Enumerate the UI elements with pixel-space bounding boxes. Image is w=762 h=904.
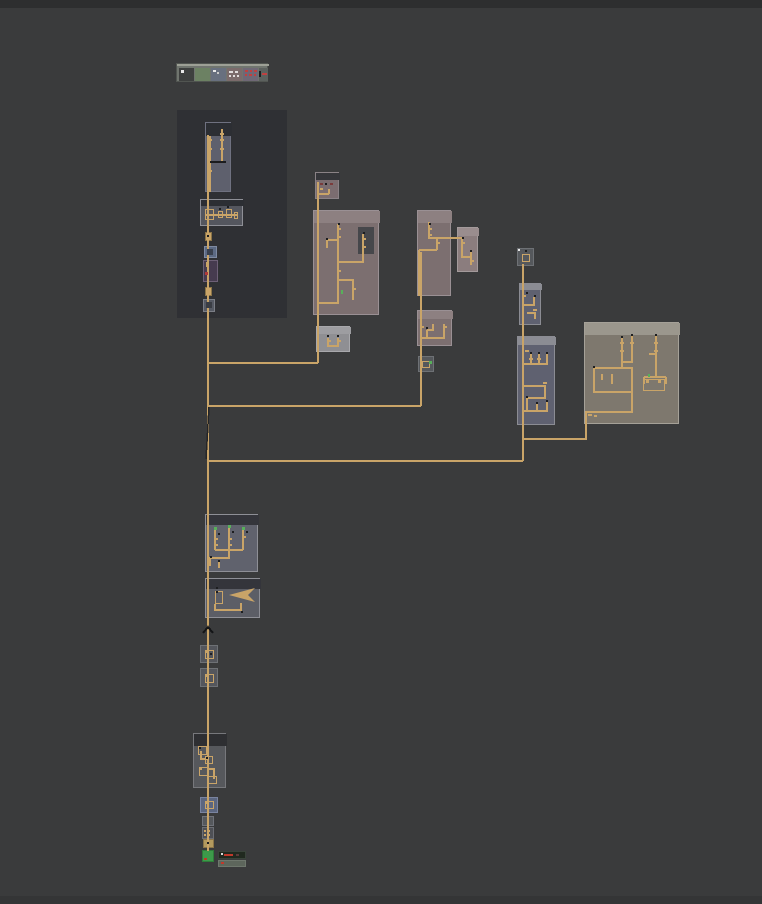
node-dot xyxy=(621,336,623,338)
node-dot xyxy=(204,858,207,860)
tile-dark-mark xyxy=(181,70,184,73)
node-dot xyxy=(206,802,208,804)
group-f-upper-header[interactable] xyxy=(206,515,259,525)
node-dot xyxy=(207,249,213,255)
node-dot xyxy=(218,533,220,535)
node-dot xyxy=(214,544,218,546)
toolbar-tile-dark[interactable] xyxy=(179,68,194,81)
group-c-lower-header[interactable] xyxy=(418,311,453,319)
node-dot xyxy=(362,238,366,240)
node-dot xyxy=(363,232,365,234)
tile-blue-mark xyxy=(217,72,219,74)
node-dot xyxy=(206,651,208,653)
group-a-sub-glyph xyxy=(226,209,232,218)
node-dot xyxy=(522,295,526,297)
node-dot xyxy=(326,238,328,240)
node-dot xyxy=(470,250,472,252)
tile-mauve-mark xyxy=(229,75,231,77)
node-dot xyxy=(204,834,206,836)
node-dot xyxy=(206,757,208,759)
node-dot xyxy=(208,139,212,141)
node-output-green[interactable] xyxy=(202,850,214,862)
node-dot xyxy=(220,139,224,141)
node-dot xyxy=(206,262,208,267)
node-dot xyxy=(538,352,540,354)
node-dot xyxy=(220,148,224,150)
node-dot xyxy=(429,361,432,364)
node-dot xyxy=(631,334,633,336)
node-dot xyxy=(206,302,212,308)
group-g-bottom-glyph xyxy=(208,776,217,784)
group-a-top-header[interactable] xyxy=(206,123,232,136)
node-dot xyxy=(214,538,218,540)
node-dot xyxy=(216,587,218,589)
node-dot xyxy=(658,380,661,383)
tile-blue-mark xyxy=(213,70,216,72)
node-dot xyxy=(646,380,649,383)
node-dot xyxy=(337,236,341,238)
node-dot xyxy=(208,834,210,836)
node-dot xyxy=(630,342,634,344)
node-dot xyxy=(420,326,424,328)
node-dot xyxy=(216,591,218,593)
group-f-lower[interactable] xyxy=(205,578,260,618)
node-dot xyxy=(320,183,323,185)
node-dot xyxy=(429,223,431,225)
tile-mauve-mark xyxy=(235,71,238,73)
tile-purple-mark xyxy=(250,70,252,72)
node-dot xyxy=(242,527,245,530)
toolbar-tile-small[interactable] xyxy=(259,68,268,81)
tile-small-mark xyxy=(259,71,261,77)
toolbar-tile-mauve[interactable] xyxy=(227,68,242,81)
group-g-bottom-header[interactable] xyxy=(194,734,227,746)
node-dot xyxy=(200,768,202,770)
node-dot xyxy=(337,270,341,272)
node-dot xyxy=(218,560,220,562)
node-dot xyxy=(207,235,209,237)
node-dot xyxy=(206,675,208,677)
node-dot xyxy=(593,366,595,368)
tile-purple-mark xyxy=(245,74,247,76)
group-g-bottom[interactable] xyxy=(193,733,226,788)
node-dot xyxy=(241,611,243,613)
node-dot xyxy=(199,747,201,749)
node-dot xyxy=(536,402,538,404)
group-f-upper[interactable] xyxy=(205,514,258,572)
group-f-lower-header[interactable] xyxy=(206,579,261,589)
node-dot xyxy=(529,358,533,360)
node-dot xyxy=(325,183,327,185)
node-dot xyxy=(546,352,548,354)
node-dot xyxy=(588,414,592,416)
node-dot xyxy=(352,288,356,290)
group-c-main[interactable] xyxy=(417,210,451,296)
toolbar-tile-purple[interactable] xyxy=(243,68,258,81)
node-dot xyxy=(210,653,212,655)
node-dot xyxy=(227,206,229,208)
node-dot xyxy=(428,234,432,236)
group-c-side-header[interactable] xyxy=(458,228,479,236)
node-dot xyxy=(210,556,212,558)
node-dot xyxy=(204,830,206,832)
wire-layer xyxy=(0,0,762,904)
node-dot xyxy=(228,525,231,528)
node-dot xyxy=(219,208,221,210)
tile-purple-mark xyxy=(245,70,248,72)
node-dot xyxy=(327,340,331,342)
node-dot xyxy=(337,228,341,230)
node-dot xyxy=(543,382,547,384)
node-dot xyxy=(221,853,223,855)
node-dot xyxy=(320,188,323,190)
node-dot xyxy=(236,854,239,856)
node-dot xyxy=(436,242,440,244)
tile-purple-mark xyxy=(254,70,257,72)
toolbar-top-edge xyxy=(177,64,269,66)
node-dot xyxy=(341,290,343,294)
node-dot xyxy=(208,148,212,150)
node-dot xyxy=(462,237,464,239)
toolbar-tile-green[interactable] xyxy=(195,68,210,81)
node-dot xyxy=(525,350,529,352)
group-b-main-inner xyxy=(358,227,374,254)
node-dot xyxy=(526,292,528,294)
node-dot xyxy=(648,374,650,377)
group-b-lower-header[interactable] xyxy=(317,327,351,334)
group-b-lower[interactable] xyxy=(316,326,350,352)
node-dot xyxy=(525,250,527,252)
node-dot xyxy=(205,272,208,275)
window-edge xyxy=(0,0,762,8)
node-dot xyxy=(208,170,212,172)
tile-purple-mark xyxy=(249,74,252,76)
node-dot xyxy=(338,223,340,225)
node-dot xyxy=(246,531,248,533)
node-dot xyxy=(228,544,232,546)
group-c-lower[interactable] xyxy=(417,310,452,346)
node-dot xyxy=(327,335,329,337)
node-dot xyxy=(461,242,465,244)
node-dot xyxy=(620,350,624,352)
node-dot xyxy=(518,249,520,251)
node-dot xyxy=(654,342,658,344)
node-dot xyxy=(533,309,537,311)
tile-mauve-mark xyxy=(237,75,239,77)
node-dot xyxy=(428,228,432,230)
toolbar-strip[interactable] xyxy=(176,63,268,82)
node-dot xyxy=(330,183,333,185)
tile-mauve-mark xyxy=(233,75,235,77)
node-dot xyxy=(362,246,366,248)
node-dot xyxy=(470,260,474,262)
node-dot xyxy=(337,340,341,342)
group-c-main-header[interactable] xyxy=(418,211,452,223)
toolbar-tile-blue[interactable] xyxy=(211,68,226,81)
node-graph-canvas[interactable] xyxy=(0,0,762,904)
node-dot xyxy=(546,400,548,402)
node-dot xyxy=(443,326,447,328)
node-dot xyxy=(224,854,233,856)
node-dot xyxy=(654,350,658,352)
tile-purple-mark xyxy=(254,74,256,76)
node-dot xyxy=(228,538,232,540)
window-edge xyxy=(0,896,762,904)
node-dot xyxy=(594,415,597,417)
node-dot xyxy=(220,133,224,135)
node-dot xyxy=(534,295,536,297)
tile-small-mark xyxy=(262,73,267,75)
node-dot xyxy=(214,527,217,530)
node-dot xyxy=(208,830,210,832)
node-dot xyxy=(537,358,541,360)
node-dot xyxy=(426,327,428,329)
node-dot xyxy=(232,531,234,533)
node-dot xyxy=(530,352,532,354)
node-single-top-glyph xyxy=(522,254,530,262)
node-dot xyxy=(207,842,209,844)
node-dot xyxy=(242,536,246,538)
node-dot xyxy=(526,396,528,398)
group-b-head-header[interactable] xyxy=(316,173,340,180)
group-b-main-header[interactable] xyxy=(314,211,380,223)
group-c-side[interactable] xyxy=(457,227,478,272)
node-dot xyxy=(221,862,224,864)
node-dot xyxy=(337,335,339,337)
node-dot xyxy=(655,334,657,336)
node-dot xyxy=(620,342,624,344)
tile-mauve-mark xyxy=(229,71,233,73)
group-a-sub[interactable] xyxy=(200,199,243,226)
